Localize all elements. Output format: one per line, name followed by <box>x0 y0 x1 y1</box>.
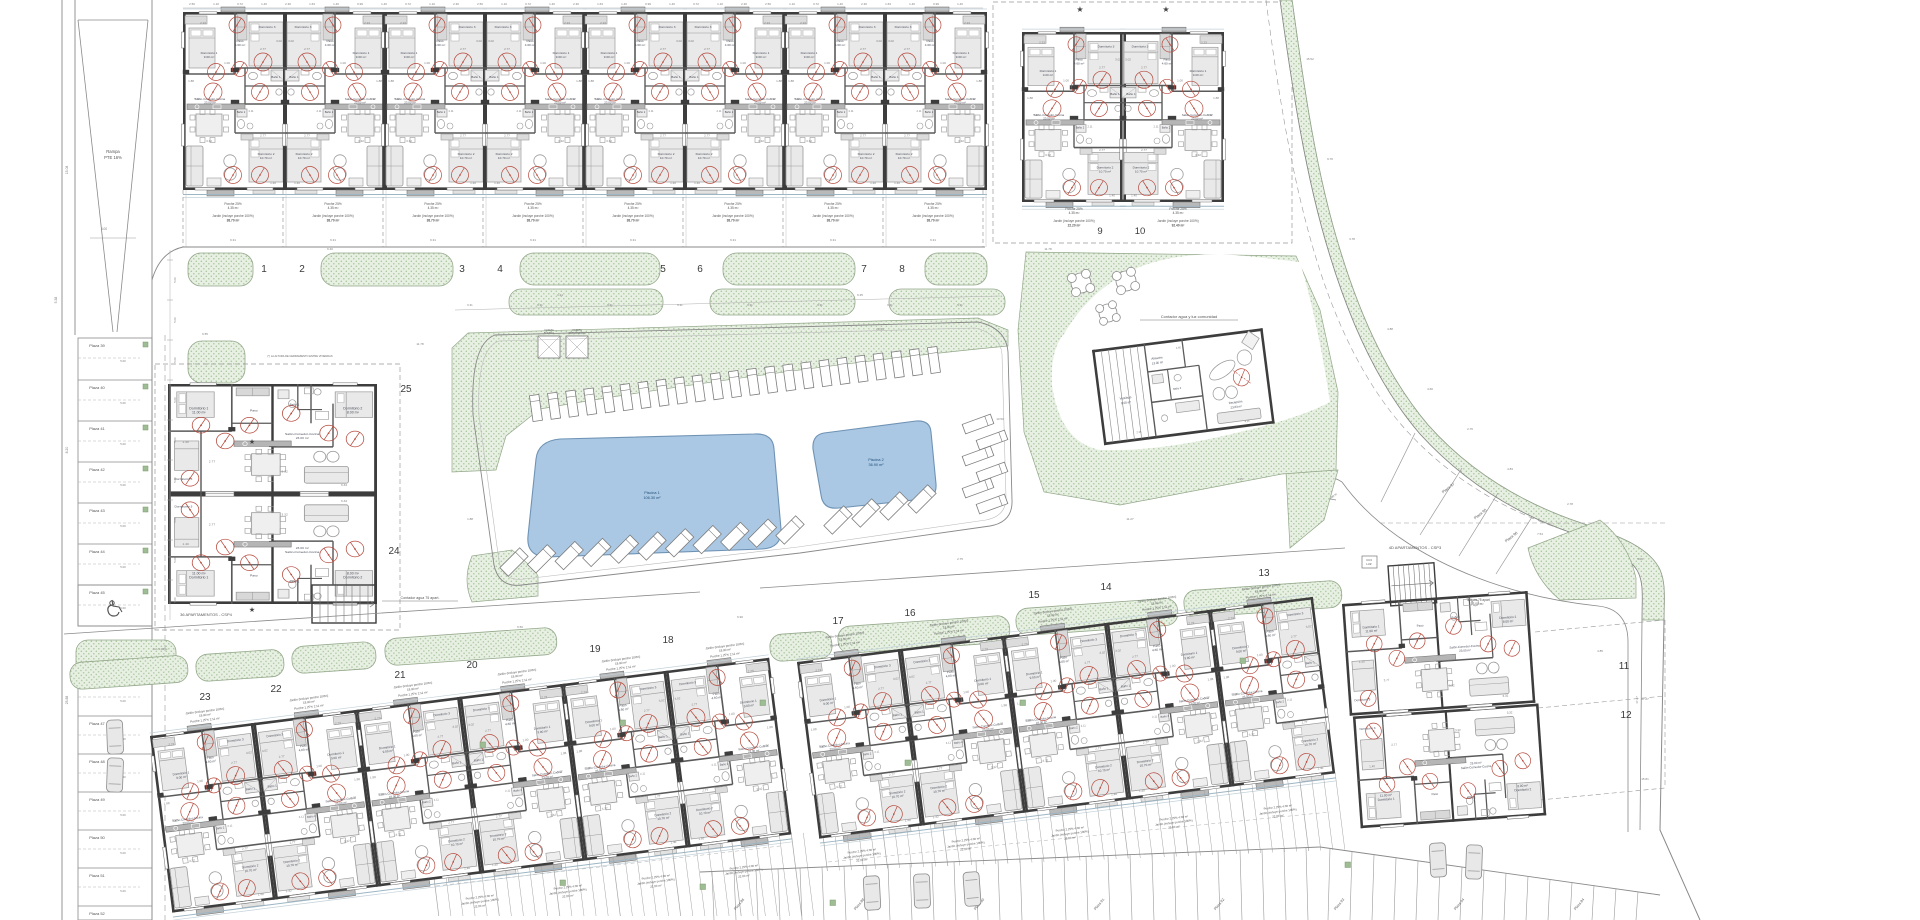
svg-text:38.70 m²: 38.70 m² <box>927 219 940 223</box>
svg-text:3.02: 3.02 <box>893 676 900 681</box>
svg-text:1.88: 1.88 <box>1207 677 1214 682</box>
svg-text:23.00 m²: 23.00 m² <box>204 101 215 105</box>
svg-text:5.77: 5.77 <box>1231 692 1238 697</box>
svg-text:3.32: 3.32 <box>756 787 763 792</box>
svg-text:5.00: 5.00 <box>173 397 177 403</box>
svg-text:3.32: 3.32 <box>281 513 288 517</box>
svg-text:1.88: 1.88 <box>370 775 377 780</box>
svg-text:1.88: 1.88 <box>163 801 170 806</box>
svg-text:7.54: 7.54 <box>1537 532 1543 536</box>
svg-text:5.77: 5.77 <box>794 97 800 101</box>
svg-text:10.70 m²: 10.70 m² <box>298 156 310 160</box>
svg-text:2.23: 2.23 <box>335 721 342 726</box>
svg-text:2.11: 2.11 <box>648 109 654 113</box>
svg-text:1.00: 1.00 <box>963 690 970 695</box>
svg-text:2.23: 2.23 <box>1188 621 1195 626</box>
svg-text:38.70 m²: 38.70 m² <box>827 219 840 223</box>
svg-text:13: 13 <box>1258 568 1270 579</box>
svg-text:1.40: 1.40 <box>549 2 555 6</box>
svg-text:Baño 1: Baño 1 <box>1451 615 1460 620</box>
svg-text:10.70 m²: 10.70 m² <box>1135 169 1147 173</box>
svg-text:1.40: 1.40 <box>698 836 705 841</box>
svg-text:Baño 1: Baño 1 <box>471 75 481 79</box>
svg-text:23.00 m²: 23.00 m² <box>354 101 365 105</box>
svg-text:5.00: 5.00 <box>173 557 177 563</box>
svg-text:4.00: 4.00 <box>101 227 107 231</box>
svg-text:1.88: 1.88 <box>354 777 361 782</box>
svg-text:3.02: 3.02 <box>276 39 282 43</box>
svg-text:12: 12 <box>1620 710 1632 721</box>
svg-text:2.77: 2.77 <box>260 134 266 138</box>
svg-text:2.77: 2.77 <box>242 846 249 851</box>
svg-text:1.00: 1.00 <box>729 712 736 717</box>
svg-text:4.35 m²: 4.35 m² <box>628 206 639 210</box>
svg-text:Plaza 50: Plaza 50 <box>89 835 105 840</box>
svg-text:Baño 1: Baño 1 <box>290 403 300 407</box>
svg-text:5.77: 5.77 <box>378 792 385 797</box>
svg-text:Plaza 40: Plaza 40 <box>89 385 105 390</box>
svg-text:8: 8 <box>899 264 905 275</box>
svg-text:5: 5 <box>660 264 666 275</box>
svg-text:17: 17 <box>832 616 844 627</box>
svg-text:19: 19 <box>589 644 601 655</box>
svg-text:2.77: 2.77 <box>437 734 444 739</box>
svg-text:6.31: 6.31 <box>830 238 836 242</box>
svg-text:Paso: Paso <box>250 574 258 578</box>
svg-text:1.40: 1.40 <box>837 2 843 6</box>
svg-text:2.23: 2.23 <box>168 742 175 747</box>
svg-text:23.00 m²: 23.00 m² <box>1459 648 1471 653</box>
svg-text:6.31: 6.31 <box>677 303 683 307</box>
svg-text:3.32: 3.32 <box>602 806 609 811</box>
svg-text:2.23: 2.23 <box>1021 642 1028 647</box>
svg-text:1.21: 1.21 <box>557 293 563 297</box>
svg-text:Baño 1: Baño 1 <box>689 75 699 79</box>
svg-text:8.00 m²: 8.00 m² <box>347 572 360 576</box>
svg-text:3.02: 3.02 <box>676 39 682 43</box>
svg-text:2.23: 2.23 <box>364 21 370 25</box>
svg-text:Baño 1: Baño 1 <box>671 75 681 79</box>
svg-text:1.88: 1.88 <box>776 79 782 83</box>
svg-text:Baño 1: Baño 1 <box>289 75 299 79</box>
svg-text:Jardín (incluye porche 100%): Jardín (incluye porche 100%) <box>212 214 253 218</box>
svg-text:23.00 m²: 23.00 m² <box>1043 117 1054 121</box>
svg-text:Dormitorio 3: Dormitorio 3 <box>259 25 276 29</box>
svg-text:2.77: 2.77 <box>304 134 310 138</box>
svg-text:Dormitorio 3: Dormitorio 3 <box>695 25 712 29</box>
svg-text:3.02: 3.02 <box>262 748 269 753</box>
svg-text:2.77: 2.77 <box>278 754 285 759</box>
svg-text:1.88: 1.88 <box>788 79 794 83</box>
svg-text:5.00: 5.00 <box>120 359 126 363</box>
svg-text:106.30 m²: 106.30 m² <box>643 496 661 500</box>
svg-text:36.90 m²: 36.90 m² <box>869 463 885 467</box>
svg-text:3.02: 3.02 <box>452 724 459 729</box>
svg-text:1.40: 1.40 <box>670 840 677 845</box>
svg-text:5.00: 5.00 <box>173 357 177 363</box>
svg-text:11.00 m²: 11.00 m² <box>192 411 207 415</box>
svg-text:2.11: 2.11 <box>316 109 322 113</box>
svg-text:1.40: 1.40 <box>182 440 189 444</box>
svg-text:3.02: 3.02 <box>288 39 294 43</box>
svg-text:Piscina 1: Piscina 1 <box>644 491 659 495</box>
svg-text:1.88: 1.88 <box>767 725 774 730</box>
svg-text:2.23: 2.23 <box>400 21 406 25</box>
svg-text:3.32: 3.32 <box>991 765 998 770</box>
svg-text:6.31: 6.31 <box>467 303 473 307</box>
svg-text:Jardín (incluye porche 100%): Jardín (incluye porche 100%) <box>912 214 953 218</box>
svg-text:1.00: 1.00 <box>224 61 230 65</box>
svg-text:2.77: 2.77 <box>1301 720 1308 725</box>
svg-text:2.11: 2.11 <box>248 109 254 113</box>
svg-text:1.40: 1.40 <box>870 181 876 185</box>
svg-text:2.77: 2.77 <box>925 680 932 685</box>
svg-text:11: 11 <box>1619 661 1630 672</box>
svg-text:3.78: 3.78 <box>1349 237 1355 241</box>
svg-text:Dormitorio 3: Dormitorio 3 <box>1098 44 1115 48</box>
svg-text:1: 1 <box>261 264 267 275</box>
svg-text:2.77: 2.77 <box>704 134 710 138</box>
svg-text:Jardín (incluye porche 100%): Jardín (incluye porche 100%) <box>412 214 453 218</box>
svg-text:1.00: 1.00 <box>340 61 346 65</box>
svg-text:2.77: 2.77 <box>1095 746 1102 751</box>
svg-text:2.23: 2.23 <box>764 21 770 25</box>
svg-text:4.35 m²: 4.35 m² <box>428 206 439 210</box>
svg-text:1.40: 1.40 <box>258 892 265 897</box>
svg-text:2.23: 2.23 <box>1201 41 1207 45</box>
svg-text:2.77: 2.77 <box>448 820 455 825</box>
svg-text:Jardín (incluye porche 100%): Jardín (incluye porche 100%) <box>512 214 553 218</box>
svg-text:23.00 m²: 23.00 m² <box>804 101 815 105</box>
svg-text:21: 21 <box>394 670 406 681</box>
svg-text:1.10: 1.10 <box>789 2 795 6</box>
svg-text:1.40: 1.40 <box>957 2 963 6</box>
svg-text:5.77: 5.77 <box>584 766 591 771</box>
svg-text:2.30: 2.30 <box>285 2 291 6</box>
svg-text:3.02: 3.02 <box>1099 650 1106 655</box>
svg-text:3.32: 3.32 <box>836 784 843 789</box>
svg-text:★: ★ <box>249 438 255 446</box>
svg-text:3.02: 3.02 <box>658 698 665 703</box>
svg-text:1.00: 1.00 <box>540 61 546 65</box>
svg-text:23: 23 <box>199 692 211 703</box>
svg-text:1.40: 1.40 <box>669 2 675 6</box>
svg-text:15: 15 <box>1028 590 1040 601</box>
svg-text:3.02: 3.02 <box>1115 648 1122 653</box>
svg-text:3.32: 3.32 <box>558 139 564 143</box>
svg-text:(*) LA ALTURA DE CERRAMIENTO E: (*) LA ALTURA DE CERRAMIENTO ENTRE VIVIE… <box>267 354 332 358</box>
svg-text:2.77: 2.77 <box>304 47 310 51</box>
svg-text:17.27: 17.27 <box>1635 696 1639 704</box>
svg-text:Baño 2: Baño 2 <box>325 110 334 114</box>
svg-text:2.11: 2.11 <box>1087 125 1093 129</box>
svg-text:1.88: 1.88 <box>576 79 582 83</box>
svg-text:2.77: 2.77 <box>504 134 510 138</box>
svg-text:5.77: 5.77 <box>172 818 179 823</box>
svg-text:3.32: 3.32 <box>1507 710 1513 714</box>
svg-text:5.00: 5.00 <box>173 277 177 283</box>
svg-text:1.10: 1.10 <box>501 2 507 6</box>
svg-text:9.00 m²: 9.00 m² <box>556 55 567 59</box>
svg-text:3.02: 3.02 <box>246 750 253 755</box>
svg-text:3.32: 3.32 <box>406 139 412 143</box>
svg-text:1.40: 1.40 <box>1369 764 1375 768</box>
svg-text:6.31: 6.31 <box>747 303 753 307</box>
svg-text:4.35 m²: 4.35 m² <box>528 206 539 210</box>
svg-text:4: 4 <box>497 264 503 275</box>
svg-text:Baño 1: Baño 1 <box>290 580 300 584</box>
svg-text:3.02: 3.02 <box>909 674 916 679</box>
svg-text:2.11: 2.11 <box>1153 125 1159 129</box>
svg-text:2.77: 2.77 <box>660 134 666 138</box>
svg-text:6.35: 6.35 <box>857 293 863 297</box>
svg-text:2.77: 2.77 <box>660 47 666 51</box>
svg-text:0.99: 0.99 <box>645 2 651 6</box>
svg-text:6.31: 6.31 <box>887 303 893 307</box>
svg-text:6.31: 6.31 <box>930 238 936 242</box>
svg-text:3.32: 3.32 <box>958 139 964 143</box>
svg-text:18: 18 <box>662 635 674 646</box>
svg-text:16: 16 <box>904 608 916 619</box>
svg-text:6: 6 <box>697 264 703 275</box>
svg-text:1.00: 1.00 <box>740 61 746 65</box>
svg-text:2.77: 2.77 <box>460 47 466 51</box>
svg-text:Baño 1: Baño 1 <box>1110 92 1120 96</box>
svg-text:1.40: 1.40 <box>464 866 471 871</box>
svg-text:5.77: 5.77 <box>997 722 1004 727</box>
svg-text:1.88: 1.88 <box>1027 96 1033 100</box>
svg-text:6.31: 6.31 <box>730 238 736 242</box>
svg-text:14: 14 <box>1100 582 1112 593</box>
svg-text:1.40: 1.40 <box>1317 766 1324 771</box>
svg-text:2.23: 2.23 <box>964 21 970 25</box>
svg-text:1.00: 1.00 <box>522 738 529 743</box>
svg-text:6.31: 6.31 <box>530 238 536 242</box>
svg-text:11.78: 11.78 <box>1044 247 1052 251</box>
svg-text:9.00 m²: 9.00 m² <box>204 55 215 59</box>
svg-text:Plaza 44: Plaza 44 <box>89 549 105 554</box>
svg-text:9.00 m²: 9.00 m² <box>404 55 415 59</box>
svg-text:6.90: 6.90 <box>737 615 743 619</box>
svg-text:2.77: 2.77 <box>704 47 710 51</box>
svg-text:4.83: 4.83 <box>1507 467 1513 471</box>
svg-text:6.31: 6.31 <box>630 238 636 242</box>
svg-text:2.50: 2.50 <box>477 2 483 6</box>
svg-text:3.32: 3.32 <box>281 470 288 474</box>
svg-text:4.25: 4.25 <box>1237 477 1243 481</box>
svg-text:2.77: 2.77 <box>904 47 910 51</box>
svg-text:2.77: 2.77 <box>504 47 510 51</box>
svg-text:Contador agua y luz comunidad: Contador agua y luz comunidad <box>1161 314 1217 319</box>
svg-text:1.10: 1.10 <box>429 2 435 6</box>
svg-text:3.02: 3.02 <box>468 722 475 727</box>
svg-text:2.77: 2.77 <box>904 134 910 138</box>
svg-text:1.88: 1.88 <box>1223 675 1230 680</box>
svg-text:3.32: 3.32 <box>1045 153 1051 157</box>
svg-text:1.63: 1.63 <box>597 2 603 6</box>
svg-text:2.30: 2.30 <box>453 2 459 6</box>
svg-text:4.35 m²: 4.35 m² <box>828 206 839 210</box>
svg-text:3.32: 3.32 <box>1042 758 1049 763</box>
svg-text:9.00 m²: 9.00 m² <box>604 55 615 59</box>
svg-text:10.70 m²: 10.70 m² <box>260 156 272 160</box>
svg-text:11.00 m²: 11.00 m² <box>192 572 207 576</box>
svg-text:Dormitorio 1: Dormitorio 1 <box>189 576 208 580</box>
svg-text:0.72: 0.72 <box>693 2 699 6</box>
svg-text:3.32: 3.32 <box>189 858 196 863</box>
svg-text:11.00 m²: 11.00 m² <box>1365 629 1377 634</box>
svg-text:5.77: 5.77 <box>770 97 776 101</box>
svg-text:3.32: 3.32 <box>341 483 348 487</box>
svg-text:5.00: 5.00 <box>120 483 126 487</box>
svg-text:4.35 m²: 4.35 m² <box>328 206 339 210</box>
svg-text:1.40: 1.40 <box>381 2 387 6</box>
svg-text:Baño 2: Baño 2 <box>637 110 646 114</box>
svg-text:3.02: 3.02 <box>1125 58 1131 62</box>
svg-text:2.77: 2.77 <box>485 728 492 733</box>
svg-text:Baño 2: Baño 2 <box>925 110 934 114</box>
svg-text:36 APARTAMENTOS - CSP4: 36 APARTAMENTOS - CSP4 <box>180 612 232 617</box>
svg-text:5.00: 5.00 <box>173 477 177 483</box>
svg-text:2.77: 2.77 <box>209 523 216 527</box>
svg-text:11.78: 11.78 <box>416 342 424 346</box>
svg-text:1.40: 1.40 <box>494 181 500 185</box>
svg-text:4.35 m²: 4.35 m² <box>1173 211 1184 215</box>
svg-text:5.00: 5.00 <box>120 699 126 703</box>
svg-text:PTE 16%: PTE 16% <box>104 155 122 160</box>
svg-text:5.77: 5.77 <box>370 97 376 101</box>
svg-text:2.77: 2.77 <box>1141 65 1147 69</box>
svg-text:Plaza 51: Plaza 51 <box>89 873 105 878</box>
svg-text:9.76: 9.76 <box>1327 157 1333 161</box>
svg-text:Piscina 2: Piscina 2 <box>868 458 883 462</box>
svg-text:1.88: 1.88 <box>810 727 817 732</box>
svg-text:2.23: 2.23 <box>815 668 822 673</box>
svg-text:6.31: 6.31 <box>537 303 543 307</box>
svg-text:2.77: 2.77 <box>1384 678 1390 682</box>
svg-text:20: 20 <box>466 660 478 671</box>
svg-text:4.60 m²: 4.60 m² <box>835 43 846 47</box>
svg-text:2.77: 2.77 <box>1291 634 1298 639</box>
svg-text:2.77: 2.77 <box>702 788 709 793</box>
svg-text:24: 24 <box>388 546 400 557</box>
svg-text:38.70 m²: 38.70 m² <box>227 219 240 223</box>
svg-text:Baño 2: Baño 2 <box>1162 126 1171 130</box>
svg-text:9.00 m²: 9.00 m² <box>356 55 367 59</box>
svg-text:3.02: 3.02 <box>1305 624 1312 629</box>
svg-text:Contador agua 75 apart.: Contador agua 75 apart. <box>401 596 440 600</box>
svg-text:3.32: 3.32 <box>1195 153 1201 157</box>
svg-text:Plaza 52: Plaza 52 <box>89 911 105 916</box>
svg-text:38.70 m²: 38.70 m² <box>427 219 440 223</box>
svg-text:4.85: 4.85 <box>1597 649 1603 653</box>
svg-text:5.00: 5.00 <box>120 565 126 569</box>
svg-text:1.40: 1.40 <box>894 181 900 185</box>
svg-text:4.60: 4.60 <box>1427 387 1433 391</box>
svg-text:Plaza 39: Plaza 39 <box>89 343 105 348</box>
svg-text:1.00: 1.00 <box>316 764 323 769</box>
svg-text:Dormitorio 3: Dormitorio 3 <box>1132 44 1149 48</box>
svg-text:3.32: 3.32 <box>395 832 402 837</box>
svg-text:3.02: 3.02 <box>488 39 494 43</box>
svg-text:5.00: 5.00 <box>120 442 126 446</box>
svg-text:2: 2 <box>299 264 305 275</box>
svg-text:5.77: 5.77 <box>350 796 357 801</box>
svg-text:min 4.00 m: min 4.00 m <box>153 647 168 651</box>
svg-text:Baño 2: Baño 2 <box>525 110 534 114</box>
svg-text:8.00 m²: 8.00 m² <box>1517 783 1528 788</box>
svg-text:Baño 1: Baño 1 <box>871 75 881 79</box>
svg-text:Dormitorio 3: Dormitorio 3 <box>459 25 476 29</box>
svg-text:5.77: 5.77 <box>1204 696 1211 701</box>
svg-text:1.40: 1.40 <box>1111 792 1118 797</box>
svg-text:2.77: 2.77 <box>1084 660 1091 665</box>
svg-text:22: 22 <box>270 684 282 695</box>
svg-text:2.77: 2.77 <box>1141 148 1147 152</box>
svg-text:3.32: 3.32 <box>206 139 212 143</box>
svg-text:4.60 m²: 4.60 m² <box>1074 62 1084 66</box>
svg-text:10.70 m²: 10.70 m² <box>698 156 710 160</box>
svg-text:23.00 m²: 23.00 m² <box>554 101 565 105</box>
svg-text:5.00: 5.00 <box>120 889 126 893</box>
svg-text:Plaza 48: Plaza 48 <box>89 759 105 764</box>
svg-text:2.77: 2.77 <box>289 840 296 845</box>
svg-text:3: 3 <box>459 264 465 275</box>
svg-text:2.11: 2.11 <box>916 109 922 113</box>
svg-text:3.32: 3.32 <box>1455 728 1461 732</box>
svg-text:Jardín (incluye porche 100%): Jardín (incluye porche 100%) <box>812 214 853 218</box>
svg-text:★: ★ <box>1162 5 1169 14</box>
svg-text:8.00 m²: 8.00 m² <box>347 411 360 415</box>
svg-text:1.00: 1.00 <box>403 753 410 758</box>
svg-text:Dormitorio 3: Dormitorio 3 <box>295 25 312 29</box>
svg-text:1.40: 1.40 <box>1109 193 1115 197</box>
svg-text:2.77: 2.77 <box>496 814 503 819</box>
svg-text:Dormitorio 3: Dormitorio 3 <box>859 25 876 29</box>
svg-text:6.31: 6.31 <box>330 238 336 242</box>
svg-text:Paso: Paso <box>1431 792 1438 797</box>
svg-text:Baño 1: Baño 1 <box>889 75 899 79</box>
svg-text:4.88: 4.88 <box>1387 327 1393 331</box>
svg-text:Rampa: Rampa <box>106 149 120 154</box>
svg-text:6.31: 6.31 <box>957 303 963 307</box>
svg-text:Salón-Comedor-Cocina: Salón-Comedor-Cocina <box>285 550 320 554</box>
svg-text:2.30: 2.30 <box>573 2 579 6</box>
svg-text:23.00 m²: 23.00 m² <box>404 101 415 105</box>
svg-text:5.77: 5.77 <box>763 743 770 748</box>
svg-text:1.00: 1.00 <box>844 705 851 710</box>
svg-text:Baño 2: Baño 2 <box>725 110 734 114</box>
svg-text:1.00: 1.00 <box>1050 679 1057 684</box>
svg-text:13.50: 13.50 <box>996 417 1004 421</box>
svg-text:5.77: 5.77 <box>194 97 200 101</box>
svg-text:0.72: 0.72 <box>525 2 531 6</box>
svg-text:22.20 m²: 22.20 m² <box>1068 224 1081 228</box>
svg-text:1.40: 1.40 <box>621 2 627 6</box>
svg-text:23.00 m²: 23.00 m² <box>1191 117 1202 121</box>
svg-text:1.40: 1.40 <box>909 2 915 6</box>
svg-text:10: 10 <box>1135 226 1146 237</box>
svg-text:4.60 m²: 4.60 m² <box>525 43 536 47</box>
svg-text:5.77: 5.77 <box>1207 113 1213 117</box>
svg-text:1.00: 1.00 <box>624 61 630 65</box>
svg-text:1.40: 1.40 <box>905 818 912 823</box>
svg-text:Plaza 41: Plaza 41 <box>89 426 105 431</box>
svg-text:Jardín (incluye porche 100%): Jardín (incluye porche 100%) <box>1157 219 1198 223</box>
svg-text:4D APARTAMENTOS - CSP3: 4D APARTAMENTOS - CSP3 <box>1389 545 1442 550</box>
svg-text:5.06: 5.06 <box>1637 557 1643 561</box>
svg-text:★: ★ <box>249 606 255 614</box>
